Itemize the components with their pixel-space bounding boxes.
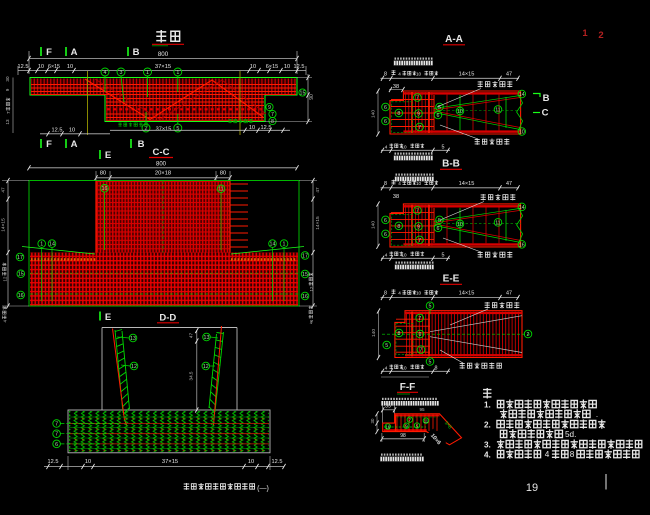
- svg-text:9: 9: [417, 224, 420, 230]
- svg-text:2: 2: [145, 126, 148, 132]
- svg-text:7: 7: [55, 432, 58, 438]
- svg-text:4: 4: [104, 70, 107, 76]
- svg-text:80: 80: [220, 171, 226, 177]
- svg-text:10: 10: [457, 222, 463, 228]
- svg-text:10: 10: [416, 72, 422, 77]
- svg-text:17: 17: [17, 255, 23, 261]
- svg-text:B: B: [138, 139, 145, 150]
- svg-text:4: 4: [545, 450, 550, 459]
- svg-text:47: 47: [315, 187, 321, 193]
- svg-text:10: 10: [401, 366, 407, 371]
- svg-text:E: E: [105, 150, 111, 161]
- svg-text:14: 14: [519, 205, 525, 211]
- svg-text:.: .: [596, 410, 598, 419]
- svg-text:8: 8: [271, 119, 274, 125]
- svg-text:15: 15: [300, 90, 306, 96]
- svg-text:8: 8: [397, 224, 400, 230]
- svg-text:9: 9: [5, 88, 10, 91]
- svg-text:F: F: [46, 139, 52, 150]
- svg-text:2.: 2.: [484, 421, 491, 430]
- svg-text:3: 3: [120, 70, 123, 76]
- svg-text:95: 95: [419, 407, 425, 412]
- svg-text:14×15: 14×15: [315, 216, 321, 230]
- svg-text:B: B: [133, 47, 140, 58]
- svg-text:14×15: 14×15: [1, 218, 7, 232]
- svg-text:35: 35: [385, 404, 391, 410]
- svg-text:3.: 3.: [484, 441, 491, 450]
- svg-text:A: A: [71, 139, 78, 150]
- svg-text:140: 140: [371, 110, 377, 118]
- svg-text:6: 6: [384, 218, 387, 224]
- svg-text:16: 16: [18, 293, 24, 299]
- svg-text:16: 16: [385, 424, 390, 429]
- svg-text:14: 14: [519, 92, 525, 98]
- svg-text:47: 47: [1, 187, 7, 193]
- svg-text:47: 47: [506, 181, 512, 187]
- svg-text:6: 6: [384, 232, 387, 238]
- svg-text:80: 80: [100, 171, 106, 177]
- svg-text:4: 4: [385, 253, 388, 258]
- svg-text:5: 5: [438, 218, 441, 224]
- svg-text:F: F: [46, 47, 52, 58]
- svg-text:38: 38: [393, 84, 399, 90]
- svg-text:6: 6: [384, 105, 387, 111]
- svg-text:5: 5: [429, 359, 432, 365]
- svg-text:5: 5: [176, 126, 179, 132]
- svg-text:1: 1: [146, 70, 149, 76]
- svg-text:C: C: [542, 108, 549, 119]
- svg-text:1: 1: [40, 242, 43, 248]
- svg-text:15: 15: [302, 272, 308, 278]
- svg-text:12: 12: [2, 276, 7, 281]
- svg-text:10: 10: [519, 129, 525, 135]
- svg-text:8: 8: [384, 72, 387, 78]
- svg-text:37×15: 37×15: [155, 64, 171, 70]
- svg-text:B: B: [543, 93, 550, 104]
- svg-text:E: E: [105, 312, 111, 323]
- svg-text:38: 38: [393, 194, 399, 200]
- svg-text:10: 10: [401, 145, 407, 150]
- svg-text:2: 2: [598, 30, 603, 41]
- svg-text:11: 11: [495, 107, 501, 113]
- svg-text:8: 8: [384, 181, 387, 187]
- svg-text:13: 13: [130, 336, 136, 342]
- svg-text:140: 140: [371, 329, 377, 337]
- svg-text:11: 11: [424, 419, 429, 424]
- svg-text:10: 10: [248, 459, 254, 465]
- svg-text:5: 5: [385, 343, 388, 349]
- svg-text:47: 47: [189, 333, 194, 339]
- svg-text:12: 12: [309, 286, 314, 291]
- svg-text:19: 19: [526, 482, 538, 494]
- svg-text:1: 1: [582, 28, 588, 39]
- svg-text:34.5: 34.5: [189, 371, 194, 380]
- svg-text:15: 15: [18, 272, 24, 278]
- svg-text:12.5: 12.5: [272, 459, 283, 465]
- svg-text:10: 10: [69, 128, 75, 134]
- svg-text:A-A: A-A: [445, 34, 463, 45]
- svg-text:9: 9: [419, 332, 422, 338]
- svg-text:7: 7: [418, 125, 421, 131]
- svg-text:8: 8: [570, 450, 575, 459]
- svg-text:14×15: 14×15: [459, 291, 475, 297]
- svg-text:6: 6: [437, 226, 440, 232]
- svg-text:12: 12: [131, 364, 137, 370]
- svg-text:1.: 1.: [484, 401, 491, 410]
- svg-text:14: 14: [270, 242, 276, 248]
- svg-text:11: 11: [218, 187, 224, 193]
- svg-text:10: 10: [67, 64, 73, 70]
- svg-text:B-B: B-B: [442, 159, 460, 170]
- svg-text:14×15: 14×15: [459, 72, 475, 78]
- svg-text:90: 90: [309, 94, 315, 100]
- svg-text:7: 7: [416, 208, 419, 214]
- svg-text:12.5: 12.5: [294, 64, 305, 70]
- svg-text:8: 8: [384, 291, 387, 297]
- svg-text:7: 7: [420, 348, 423, 354]
- svg-text:47: 47: [506, 291, 512, 297]
- svg-text:13: 13: [204, 335, 210, 341]
- svg-text:7: 7: [416, 95, 419, 101]
- svg-text:7: 7: [6, 111, 11, 114]
- svg-text:5: 5: [429, 304, 432, 310]
- svg-text:7: 7: [55, 421, 58, 427]
- svg-text:17: 17: [302, 253, 308, 259]
- svg-text:7: 7: [418, 238, 421, 244]
- svg-text:5: 5: [442, 253, 445, 259]
- svg-text:4: 4: [398, 291, 401, 296]
- svg-text:12: 12: [203, 364, 209, 370]
- svg-text:E-E: E-E: [443, 274, 460, 285]
- svg-text:4: 4: [398, 181, 401, 186]
- svg-text:13: 13: [5, 119, 10, 125]
- svg-text:6: 6: [437, 113, 440, 119]
- svg-text:5d.: 5d.: [565, 430, 576, 439]
- svg-text:20×18: 20×18: [155, 171, 171, 177]
- svg-text:10: 10: [284, 64, 290, 70]
- svg-text:6×15: 6×15: [48, 64, 60, 70]
- svg-text:10: 10: [249, 125, 255, 131]
- svg-text:98: 98: [400, 433, 406, 439]
- svg-text:4: 4: [385, 366, 388, 371]
- svg-text:16: 16: [302, 294, 308, 300]
- svg-text:A: A: [71, 47, 78, 58]
- svg-text:14: 14: [49, 242, 55, 248]
- svg-text:16: 16: [102, 186, 108, 192]
- svg-text:D-D: D-D: [159, 313, 176, 324]
- svg-text:47: 47: [506, 72, 512, 78]
- svg-text:800: 800: [158, 51, 169, 58]
- svg-text:12.5: 12.5: [52, 128, 63, 134]
- svg-text:10: 10: [457, 109, 463, 115]
- svg-text:37×15: 37×15: [162, 459, 178, 465]
- svg-text:11: 11: [495, 220, 501, 226]
- svg-text:10: 10: [85, 459, 91, 465]
- svg-text:1: 1: [176, 70, 179, 76]
- svg-text:1: 1: [283, 242, 286, 248]
- svg-text:4: 4: [398, 72, 401, 77]
- svg-text:10: 10: [401, 253, 407, 258]
- svg-text:16: 16: [519, 242, 525, 248]
- svg-text:140: 140: [371, 221, 377, 229]
- svg-text:6×15: 6×15: [266, 64, 279, 70]
- svg-text:F-F: F-F: [400, 382, 416, 393]
- svg-text:10: 10: [250, 64, 256, 70]
- svg-text:10: 10: [38, 64, 44, 70]
- svg-text:30: 30: [5, 76, 10, 82]
- svg-text:8: 8: [398, 331, 401, 337]
- svg-text:12.5: 12.5: [18, 64, 29, 70]
- svg-text:5: 5: [442, 145, 445, 151]
- svg-text:10: 10: [416, 291, 422, 296]
- svg-text:C-C: C-C: [153, 147, 170, 158]
- svg-text:12.5: 12.5: [261, 125, 272, 131]
- svg-text:2: 2: [527, 332, 530, 338]
- svg-text:(—): (—): [257, 486, 269, 493]
- svg-text:10: 10: [416, 181, 422, 186]
- svg-text:800: 800: [156, 162, 167, 168]
- svg-text:7: 7: [418, 316, 421, 322]
- svg-text:8: 8: [435, 366, 438, 372]
- svg-text:9: 9: [417, 111, 420, 117]
- svg-text:30: 30: [370, 418, 375, 423]
- svg-text:8: 8: [397, 111, 400, 117]
- svg-text:37×15: 37×15: [156, 126, 172, 132]
- svg-text:9: 9: [268, 105, 271, 111]
- svg-text:4: 4: [385, 145, 388, 150]
- svg-text:14×15: 14×15: [459, 181, 475, 187]
- svg-text:4.: 4.: [484, 451, 491, 460]
- svg-text:6: 6: [55, 442, 58, 448]
- svg-text:6: 6: [384, 119, 387, 125]
